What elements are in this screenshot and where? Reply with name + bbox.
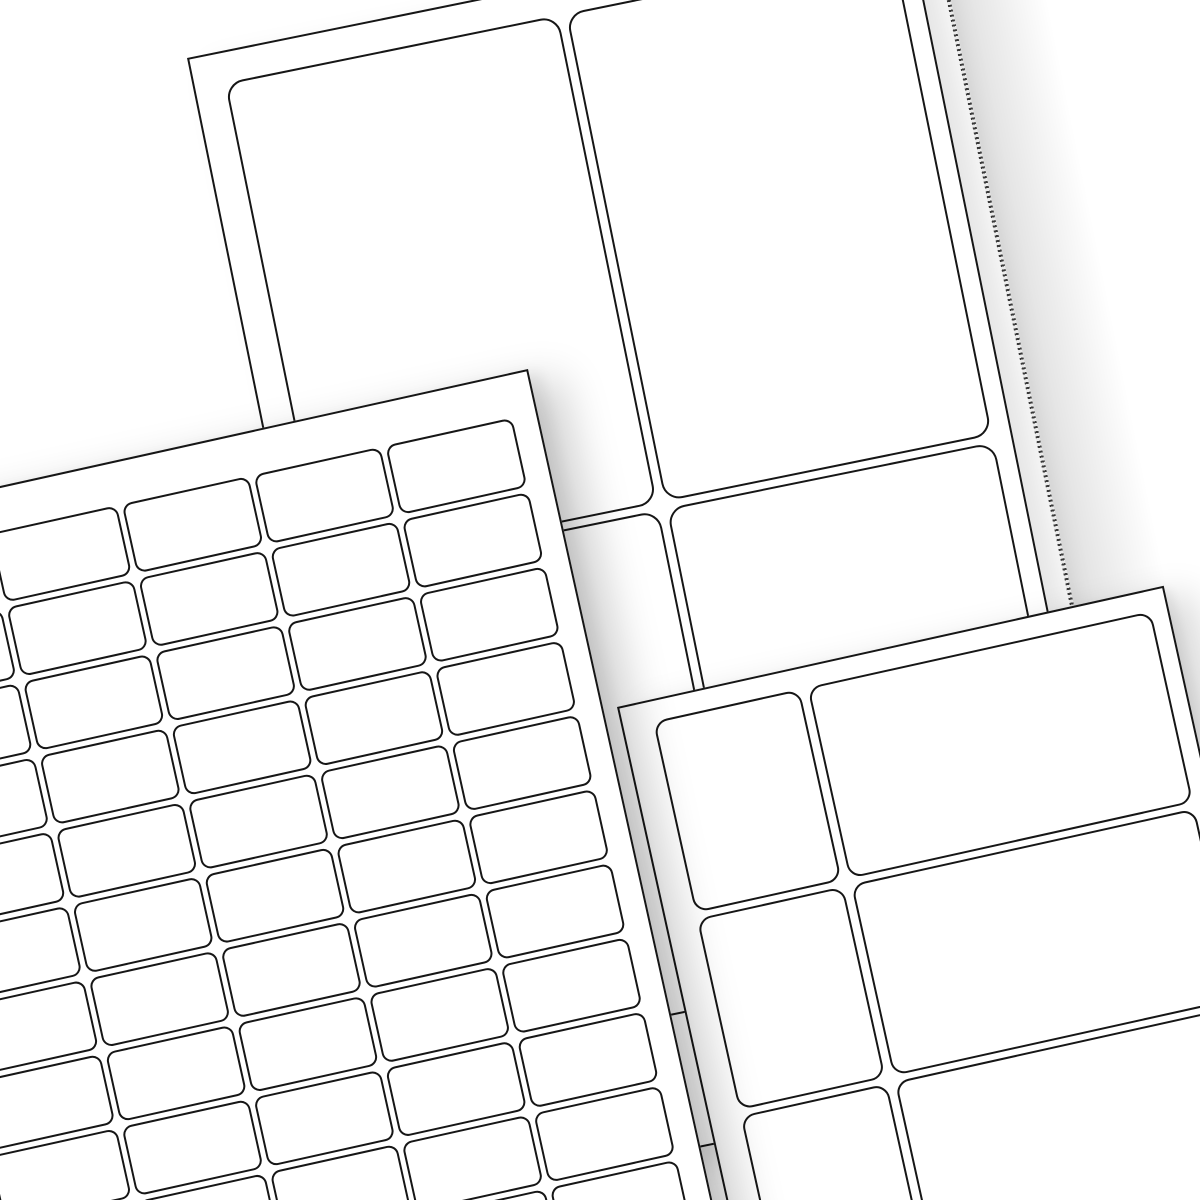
- label-cell: [653, 689, 842, 913]
- mixed-label-grid: [653, 611, 1200, 1200]
- label-cell: [697, 886, 886, 1110]
- label-sheets-product-image: [0, 0, 1200, 1200]
